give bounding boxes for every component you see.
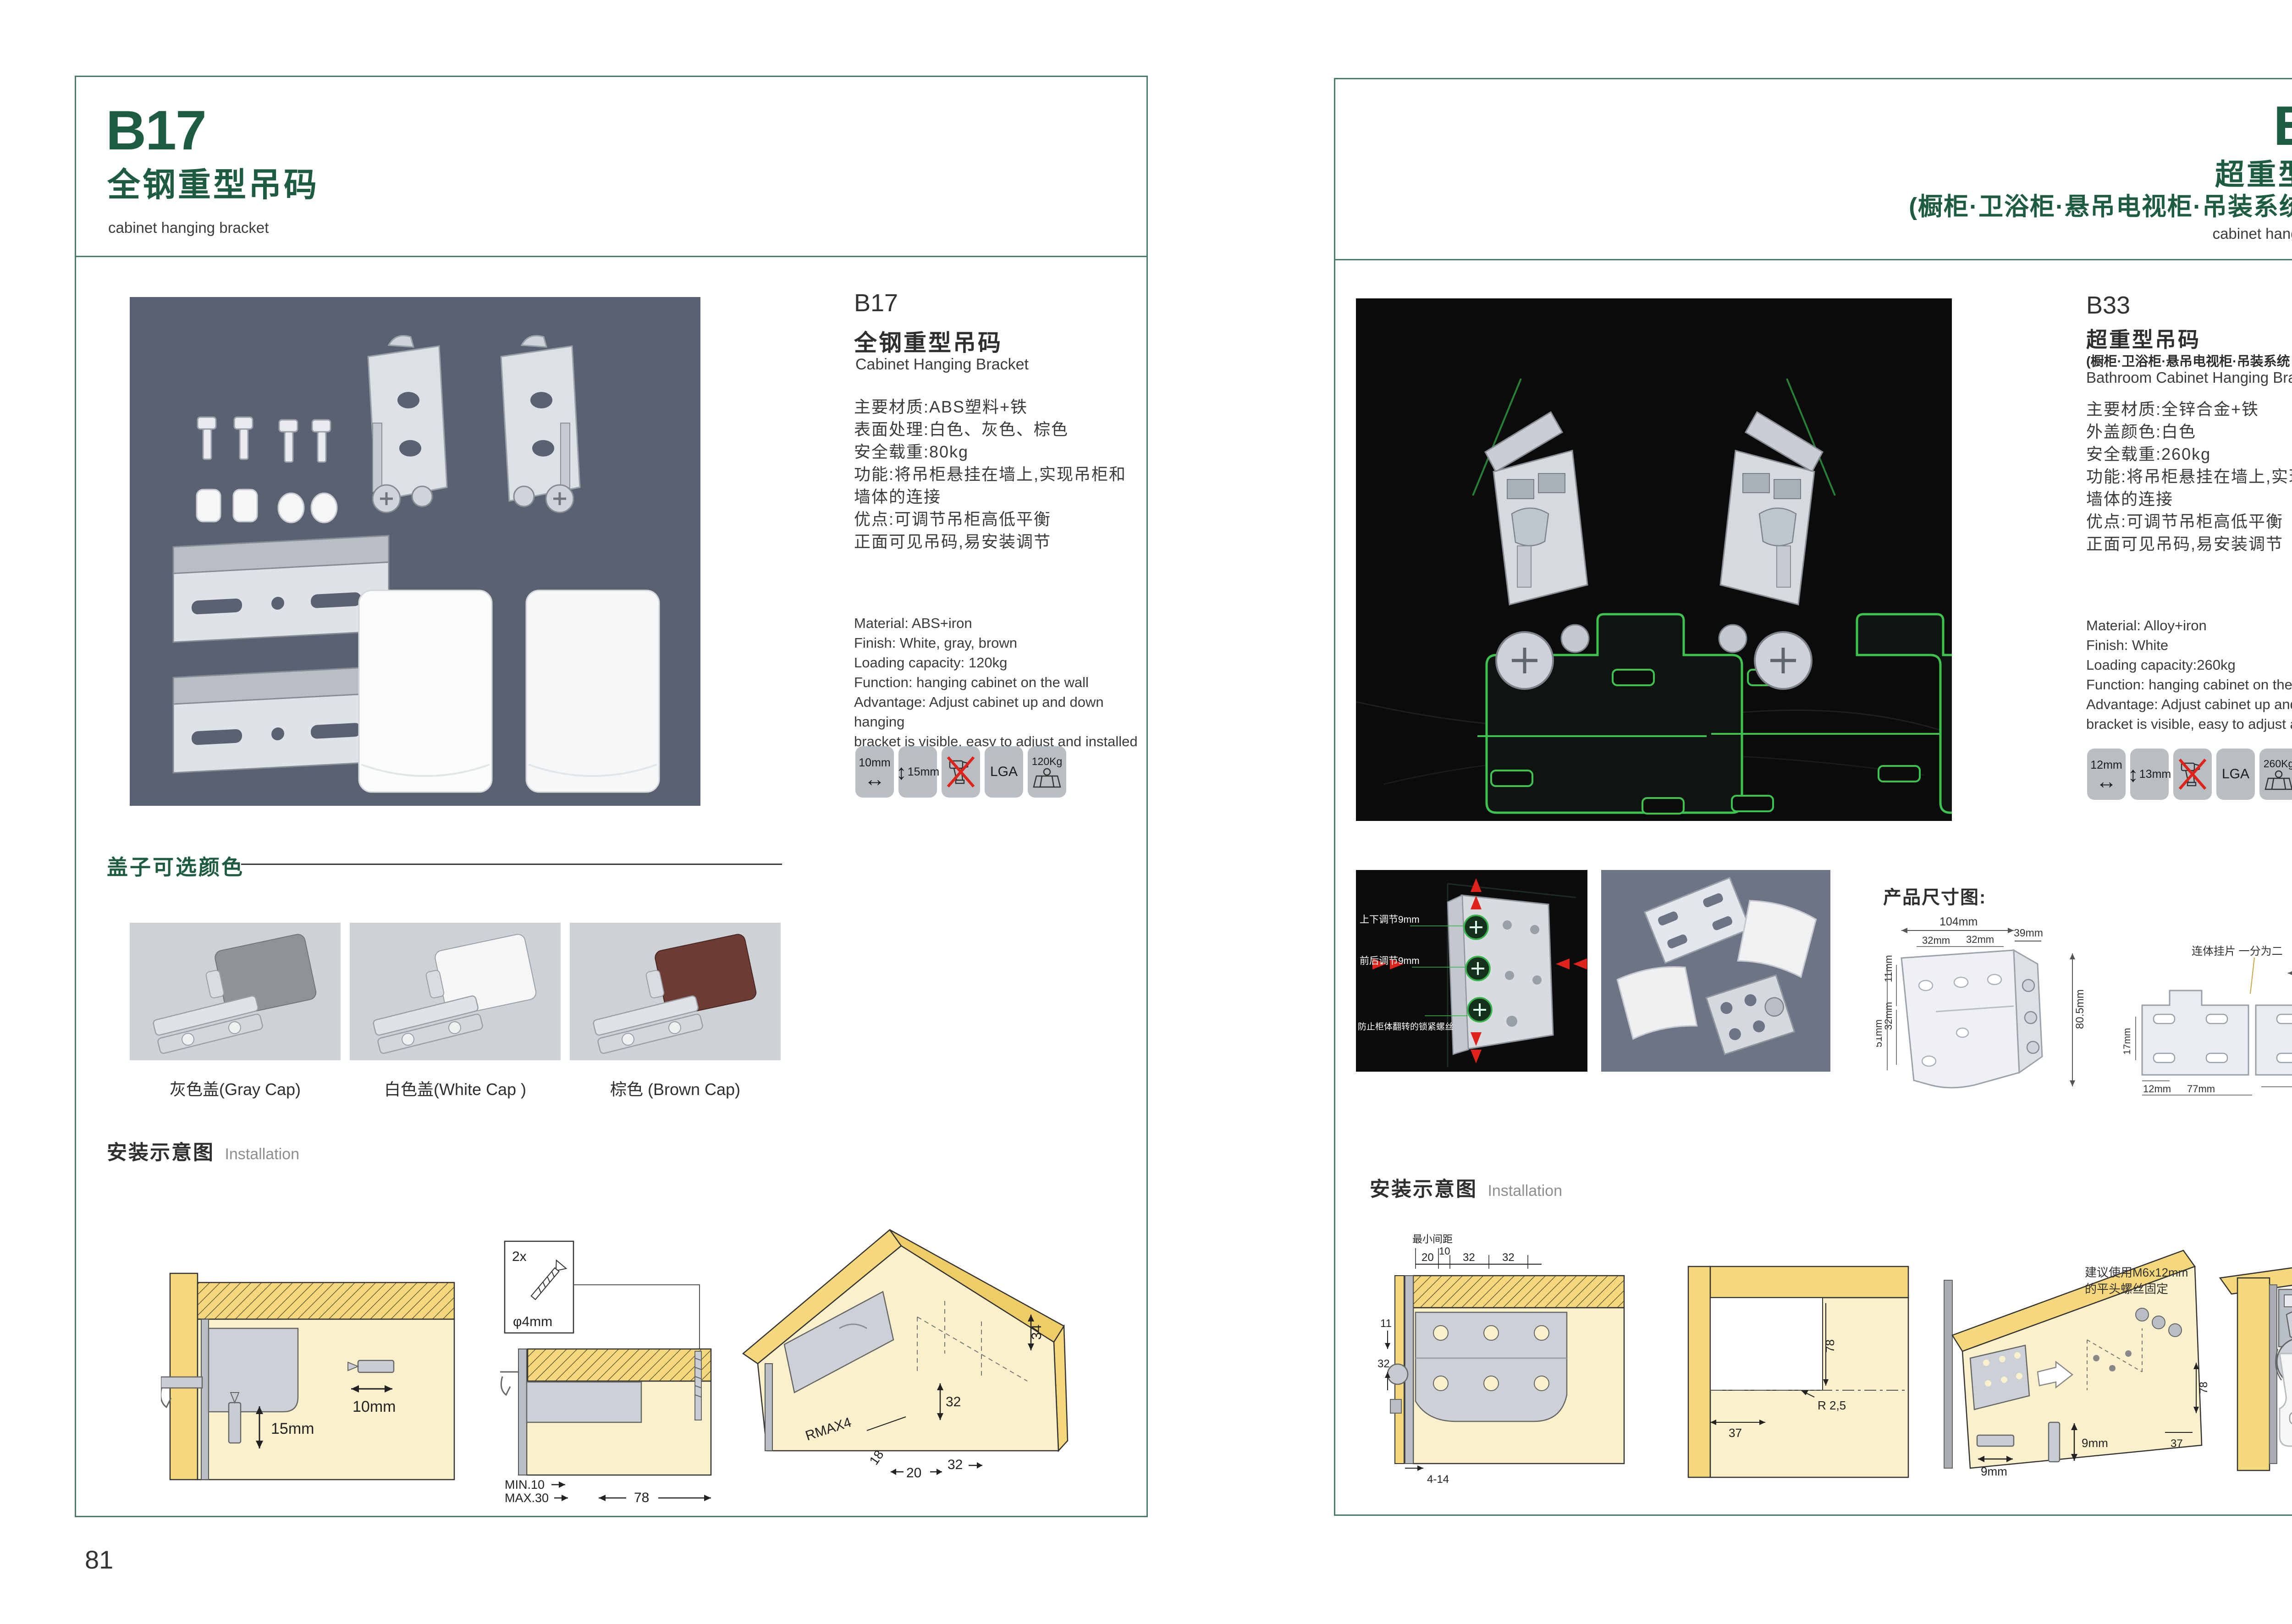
product-specs-en: Material: ABS+iron Finish: White, gray, …	[854, 613, 1146, 751]
b17-product-photo	[130, 297, 700, 806]
spec-line: Material: ABS+iron	[854, 613, 1146, 633]
load-capacity-icon: 260Kg	[2259, 749, 2292, 800]
svg-text:32: 32	[948, 1457, 963, 1472]
spec-line: 安全载重:80kg	[854, 440, 1126, 463]
svg-text:12mm: 12mm	[2143, 1083, 2171, 1095]
load-capacity-icon: 120Kg	[1028, 746, 1066, 798]
horizontal-arrow-icon: ↔	[2096, 772, 2117, 790]
header-divider-right	[1335, 259, 2292, 260]
svg-text:前后调节9mm: 前后调节9mm	[1360, 956, 1420, 966]
svg-text:MIN.10: MIN.10	[505, 1478, 545, 1492]
page-number-left: 81	[85, 1545, 113, 1574]
svg-text:15mm: 15mm	[271, 1420, 314, 1437]
load-label: 260Kg	[2264, 758, 2292, 770]
white-cover-2	[526, 590, 659, 792]
height-spec-label: 13mm	[2139, 768, 2171, 781]
feature-icons-left: 10mm ↔ ↕ 15mm	[855, 746, 1066, 798]
svg-text:34: 34	[1029, 1325, 1044, 1340]
svg-text:32mm: 32mm	[1883, 1002, 1894, 1030]
product-name-cn: 超重型吊码	[2086, 323, 2201, 353]
b33-product-photo	[1356, 298, 1952, 821]
page-title-code-left: B17	[106, 102, 206, 158]
spec-line: Loading capacity:260kg	[2086, 655, 2292, 675]
catalog-spread: B17 全钢重型吊码 cabinet hanging bracket	[0, 0, 2292, 1624]
exploded-parts-photo	[1601, 870, 1830, 1072]
svg-text:39mm: 39mm	[2014, 927, 2043, 939]
svg-text:20: 20	[906, 1465, 921, 1481]
horizontal-arrow-icon: ↔	[864, 770, 885, 788]
dims-drawing-plates: 连体挂片 一分为二 55mm 39mm 55mm 8mm	[2110, 941, 2292, 1101]
spec-line: Finish: White, gray, brown	[854, 633, 1146, 653]
product-name-en: Bathroom Cabinet Hanging Bracket	[2086, 369, 2292, 386]
install-diagram-mounted-cover	[2211, 1239, 2292, 1496]
height-spec-icon: ↕ 15mm	[898, 746, 937, 798]
install-diagram-cabinet-section: 10mm 15mm	[161, 1269, 463, 1484]
install-diagram-niche-section: 78 R 2,5 37	[1656, 1239, 1917, 1496]
spec-line: 墙体的连接	[854, 485, 1126, 508]
spec-line: Advantage: Adjust cabinet up and down ha…	[854, 692, 1146, 732]
install-diagram-isometric-right: 建议使用M6x12mm 的平头螺丝固定 9mm 9mm 78 37	[1927, 1221, 2211, 1496]
dims-drawing-bracket: 104mm 39mm 32mm 32mm 11mm 32mm 51mm 80.5…	[1876, 910, 2092, 1112]
product-code: B33	[2086, 291, 2130, 319]
svg-text:78: 78	[2198, 1382, 2210, 1394]
svg-text:防止柜体翻转的锁紧螺丝: 防止柜体翻转的锁紧螺丝	[1358, 1022, 1454, 1032]
svg-text:连体挂片 一分为二: 连体挂片 一分为二	[2192, 945, 2283, 958]
spec-line: Loading capacity: 120kg	[854, 653, 1146, 672]
product-name-cn: 全钢重型吊码	[854, 325, 1003, 358]
svg-text:9mm: 9mm	[1981, 1464, 2007, 1478]
spec-line: 优点:可调节吊柜高低平衡	[2086, 510, 2292, 533]
svg-text:78: 78	[634, 1490, 649, 1503]
spec-line: Advantage: Adjust cabinet up and down ha…	[2086, 694, 2292, 714]
load-label: 120Kg	[1032, 755, 1063, 768]
spec-line: bracket is visible, easy to adjust and i…	[2086, 714, 2292, 734]
cap-card-gray	[130, 923, 341, 1060]
svg-text:11: 11	[1380, 1317, 1392, 1330]
spec-line: 外盖颜色:白色	[2086, 420, 2292, 443]
wall-plate-2	[173, 666, 389, 773]
adjustment-detail-photo: 上下调节9mm 前后调节9mm 防止柜体翻转的锁紧螺丝	[1356, 870, 1587, 1072]
installation-title-en: Installation	[225, 1145, 299, 1163]
page-title-code-right: B33	[1410, 98, 2292, 154]
lga-cert-icon: LGA	[2216, 749, 2255, 800]
svg-text:32: 32	[1502, 1251, 1515, 1264]
svg-text:建议使用M6x12mm: 建议使用M6x12mm	[2085, 1266, 2188, 1279]
installation-title-cn: 安装示意图	[107, 1136, 215, 1165]
product-specs-en: Material: Alloy+iron Finish: White Loadi…	[2086, 616, 2292, 734]
product-name-cn2: (橱柜·卫浴柜·悬吊电视柜·吊装系统 专用)	[2086, 351, 2292, 370]
svg-text:32mm: 32mm	[1922, 935, 1950, 946]
header-right: B33 超重型吊码 (橱柜·卫浴柜·悬吊电视柜·吊装系统 专用) cabinet…	[1410, 98, 2292, 242]
spec-line: Material: Alloy+iron	[2086, 616, 2292, 635]
svg-text:78: 78	[1823, 1339, 1837, 1353]
cap-caption-gray: 灰色盖(Gray Cap)	[130, 1076, 341, 1100]
spec-line: 主要材质:ABS塑料+铁	[854, 396, 1126, 418]
svg-text:φ4mm: φ4mm	[513, 1314, 552, 1329]
svg-text:37: 37	[2171, 1437, 2183, 1450]
svg-text:17mm: 17mm	[2122, 1028, 2132, 1055]
spec-line: 主要材质:全锌合金+铁	[2086, 398, 2292, 420]
spec-line: 优点:可调节吊柜高低平衡	[854, 508, 1126, 530]
caps-section-rule	[241, 864, 782, 865]
cap-caption-white: 白色盖(White Cap )	[350, 1076, 561, 1100]
page-title-cn2-right: (橱柜·卫浴柜·悬吊电视柜·吊装系统 专用)	[1410, 192, 2292, 222]
spec-line: 安全载重:260kg	[2086, 443, 2292, 465]
product-specs-cn: 主要材质:全锌合金+铁 外盖颜色:白色 安全载重:260kg 功能:将吊柜悬挂在…	[2086, 398, 2292, 555]
product-name-en: Cabinet Hanging Bracket	[855, 356, 1029, 374]
plate-right	[2256, 991, 2292, 1075]
install-diagram-isometric: 34 32 RMAX4 18 20 32	[725, 1202, 1073, 1486]
page-subtitle-en-left: cabinet hanging bracket	[108, 219, 269, 237]
svg-text:R 2,5: R 2,5	[1818, 1398, 1846, 1412]
lga-cert-icon: LGA	[985, 746, 1023, 798]
vertical-arrow-icon: ↕	[896, 763, 907, 781]
page-title-cn-left: 全钢重型吊码	[107, 166, 319, 204]
header-divider-left	[76, 256, 1146, 257]
spec-line: 正面可见吊码,易安装调节	[2086, 533, 2292, 555]
wall-plate-1	[173, 535, 389, 642]
svg-text:37: 37	[1729, 1426, 1742, 1440]
product-specs-cn: 主要材质:ABS塑料+铁 表面处理:白色、灰色、棕色 安全载重:80kg 功能:…	[854, 396, 1126, 553]
installation-title-en: Installation	[1488, 1182, 1562, 1200]
svg-text:32: 32	[1463, 1251, 1475, 1264]
hanging-bracket-2	[501, 336, 580, 512]
hanging-bracket-1	[368, 336, 447, 512]
page-title-cn-right: 超重型吊码	[1410, 158, 2292, 192]
spec-line: 墙体的连接	[2086, 488, 2292, 510]
spec-line: 功能:将吊柜悬挂在墙上,实现吊柜和	[854, 463, 1126, 485]
page-right: B33 超重型吊码 (橱柜·卫浴柜·悬吊电视柜·吊装系统 专用) cabinet…	[1334, 78, 2292, 1516]
mounted-cover	[2280, 1354, 2292, 1446]
height-spec-icon: ↕ 13mm	[2130, 749, 2169, 800]
spec-line: Finish: White	[2086, 635, 2292, 655]
page-subtitle-en-right: cabinet hanging bracket	[1410, 225, 2292, 242]
svg-text:上下调节9mm: 上下调节9mm	[1360, 914, 1420, 925]
svg-text:32mm: 32mm	[1966, 934, 1994, 945]
svg-text:80.5mm: 80.5mm	[2074, 989, 2086, 1029]
product-code: B17	[854, 289, 898, 317]
height-spec-label: 15mm	[908, 765, 939, 779]
spec-line: 正面可见吊码,易安装调节	[854, 530, 1126, 553]
page-left: B17 全钢重型吊码 cabinet hanging bracket	[75, 76, 1148, 1517]
installation-title-right: 安装示意图 Installation	[1370, 1173, 1562, 1202]
caps-section-title: 盖子可选颜色	[107, 851, 244, 881]
plate-left	[2142, 991, 2248, 1075]
white-cover-1	[359, 590, 492, 792]
install-diagram-front-section: 最小间距 20 10 32 32 11 32 4-14	[1372, 1221, 1633, 1496]
svg-text:最小间距: 最小间距	[1412, 1233, 1453, 1245]
vertical-arrow-icon: ↕	[2128, 765, 2138, 783]
svg-text:32: 32	[946, 1394, 961, 1409]
svg-text:2x: 2x	[512, 1249, 527, 1264]
svg-text:9mm: 9mm	[2082, 1436, 2108, 1450]
svg-text:20: 20	[1421, 1251, 1434, 1264]
svg-text:32: 32	[1377, 1358, 1390, 1370]
svg-text:MAX.30: MAX.30	[505, 1491, 549, 1503]
lga-label: LGA	[990, 764, 1018, 780]
install-diagram-screw-section: 2x φ4mm MIN.10 MAX.30 78	[500, 1239, 716, 1503]
svg-text:10: 10	[1439, 1245, 1450, 1257]
svg-text:77mm: 77mm	[2187, 1083, 2215, 1095]
svg-text:的平头螺丝固定: 的平头螺丝固定	[2085, 1282, 2168, 1296]
spec-line: 表面处理:白色、灰色、棕色	[854, 418, 1126, 440]
svg-text:10mm: 10mm	[353, 1398, 396, 1415]
installation-title-left: 安装示意图 Installation	[107, 1136, 299, 1165]
svg-text:11mm: 11mm	[1883, 955, 1894, 983]
spec-line: Function: hanging cabinet on the wall	[854, 672, 1146, 692]
installation-title-cn: 安装示意图	[1370, 1173, 1477, 1202]
cap-caption-brown: 棕色 (Brown Cap)	[570, 1076, 781, 1100]
svg-text:4-14: 4-14	[1427, 1473, 1449, 1486]
no-drill-icon	[942, 746, 980, 798]
adjustment-screws	[1464, 915, 1492, 1022]
spec-line: 功能:将吊柜悬挂在墙上,实现吊柜和	[2086, 465, 2292, 488]
lga-label: LGA	[2222, 766, 2249, 782]
width-spec-icon: 10mm ↔	[855, 746, 894, 798]
feature-icons-right: 12mm ↔ ↕ 13mm	[2087, 749, 2292, 800]
spec-line: Function: hanging cabinet on the wall	[2086, 675, 2292, 694]
dims-section-title: 产品尺寸图:	[1883, 882, 1986, 909]
svg-text:104mm: 104mm	[1939, 915, 1978, 928]
width-spec-icon: 12mm ↔	[2087, 749, 2126, 800]
cap-card-white	[350, 923, 561, 1060]
svg-text:51mm: 51mm	[1876, 1019, 1884, 1047]
no-drill-icon	[2173, 749, 2212, 800]
cap-card-brown	[570, 923, 781, 1060]
